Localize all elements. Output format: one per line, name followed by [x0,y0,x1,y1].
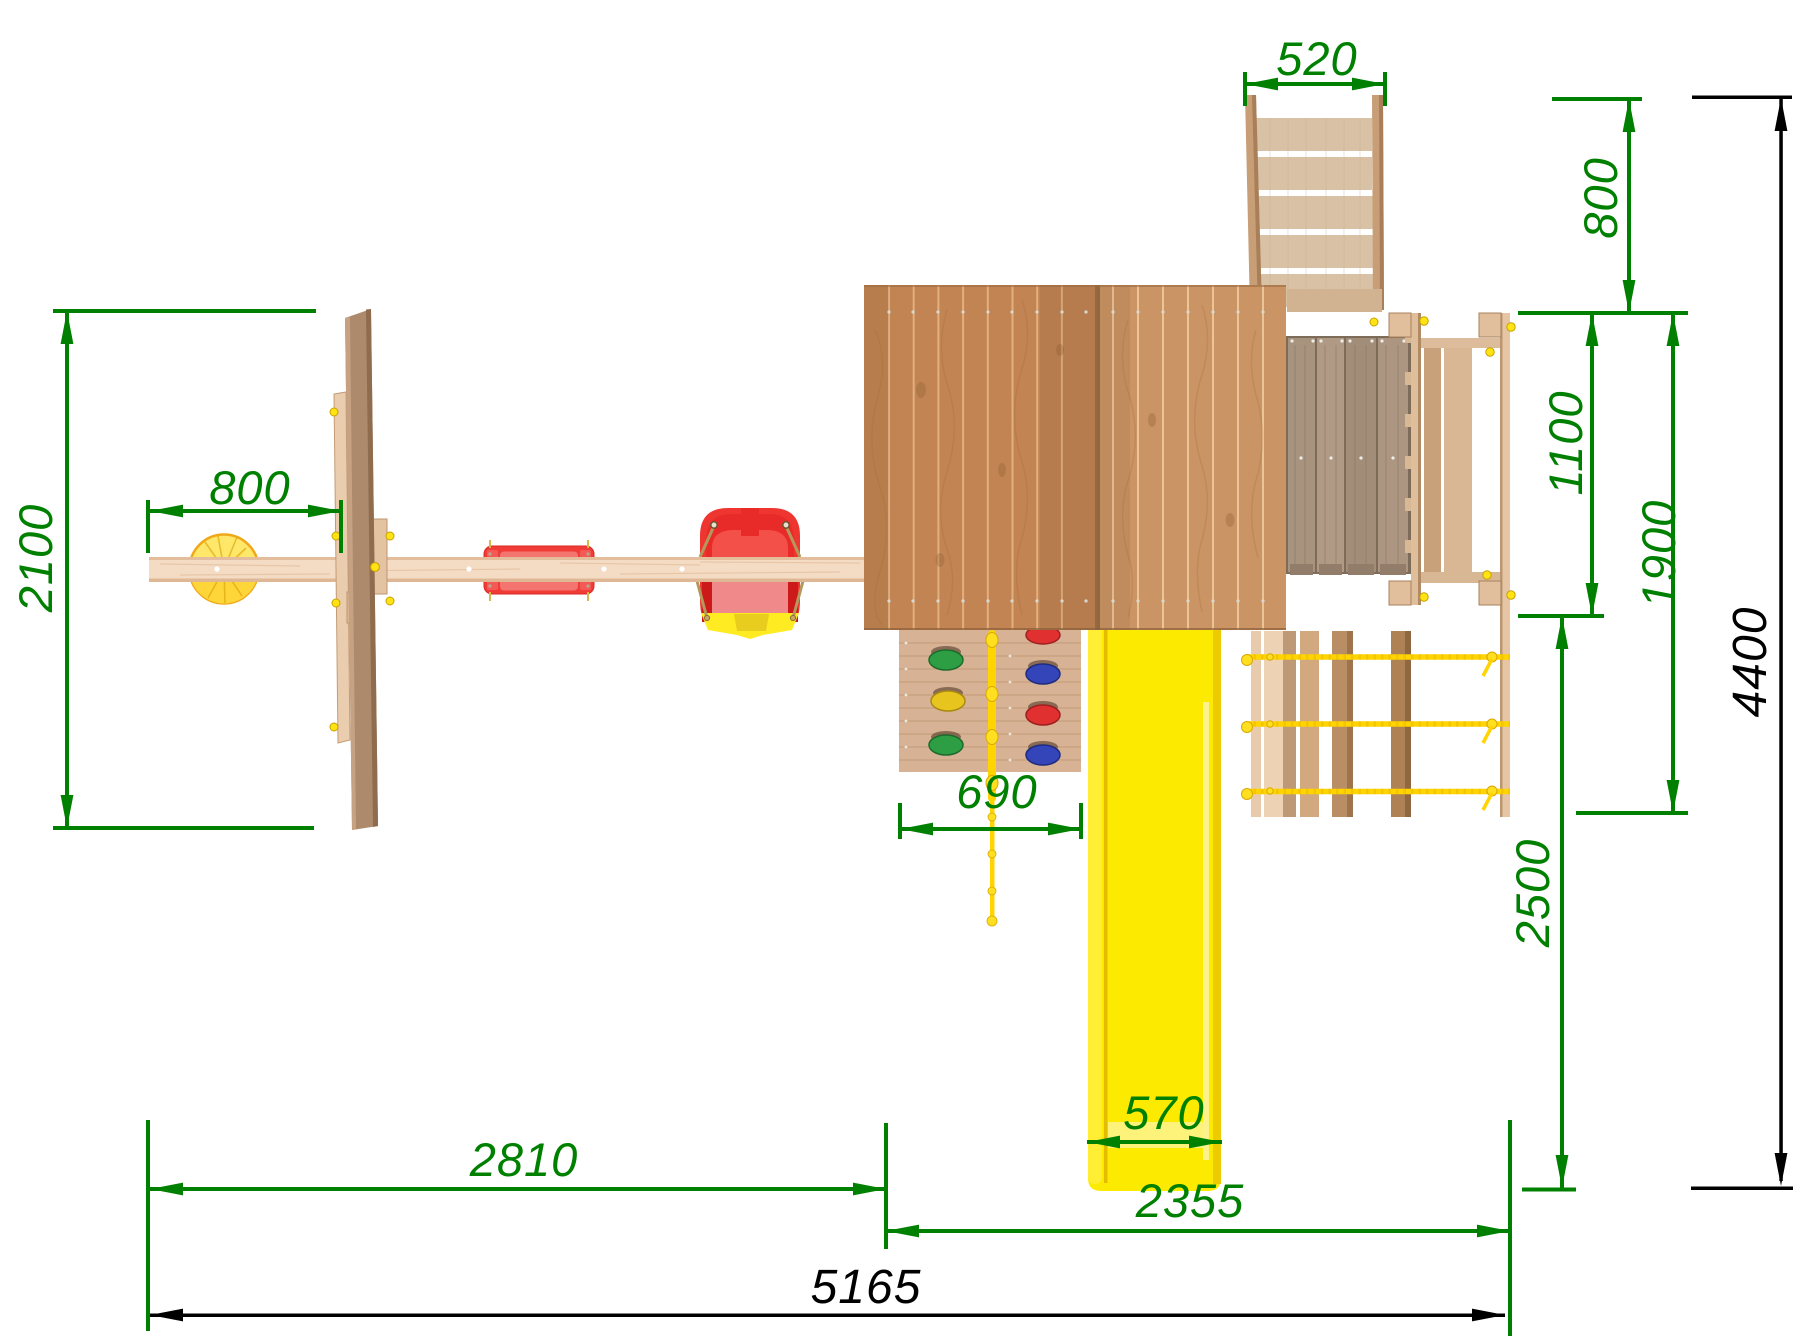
svg-text:1900: 1900 [1632,500,1685,609]
svg-text:4400: 4400 [1724,607,1777,718]
svg-text:5165: 5165 [811,1261,922,1314]
svg-text:2100: 2100 [9,504,62,614]
svg-text:690: 690 [956,765,1037,818]
svg-text:2810: 2810 [469,1133,579,1186]
svg-text:2500: 2500 [1506,839,1559,949]
svg-text:2355: 2355 [1135,1174,1245,1227]
svg-text:800: 800 [1574,157,1627,238]
svg-text:800: 800 [209,461,290,514]
svg-text:1100: 1100 [1539,390,1592,495]
svg-text:570: 570 [1123,1086,1204,1139]
svg-text:520: 520 [1276,32,1357,85]
